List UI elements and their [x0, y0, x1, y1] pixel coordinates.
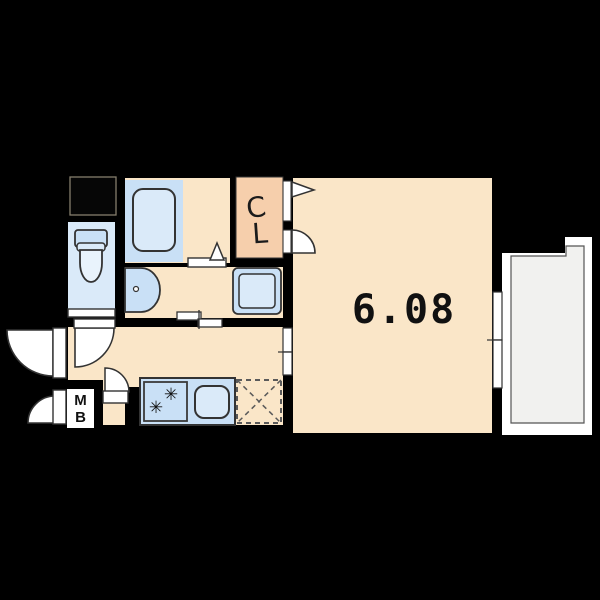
- meter-box-label: B: [75, 409, 86, 426]
- meter-box-label: M: [74, 392, 87, 409]
- toilet-bowl: [80, 250, 102, 282]
- kitchen-counter-icon: ✳ ✳: [140, 378, 235, 425]
- main-room-area-label: 6.08: [352, 287, 456, 333]
- closet-label-l: L: [251, 216, 269, 250]
- balcony: [502, 237, 592, 435]
- balcony-deck: [511, 246, 584, 423]
- kitchen-sink-icon: [195, 386, 229, 418]
- stove-burner-icon: ✳: [149, 398, 163, 418]
- pipe-shaft: [70, 177, 116, 215]
- floor-plan: ✳ ✳ M B: [0, 0, 600, 600]
- meter-box: M B: [67, 389, 94, 428]
- washbasin-drain: [134, 287, 139, 292]
- floor-plan-drawing: ✳ ✳ M B: [0, 0, 600, 600]
- washbasin-counter: [125, 268, 160, 312]
- stove-burner-icon: ✳: [164, 385, 178, 405]
- bathtub-icon: [133, 189, 175, 251]
- washing-machine-pan-icon: [233, 268, 281, 314]
- washbasin-icon: [125, 268, 160, 312]
